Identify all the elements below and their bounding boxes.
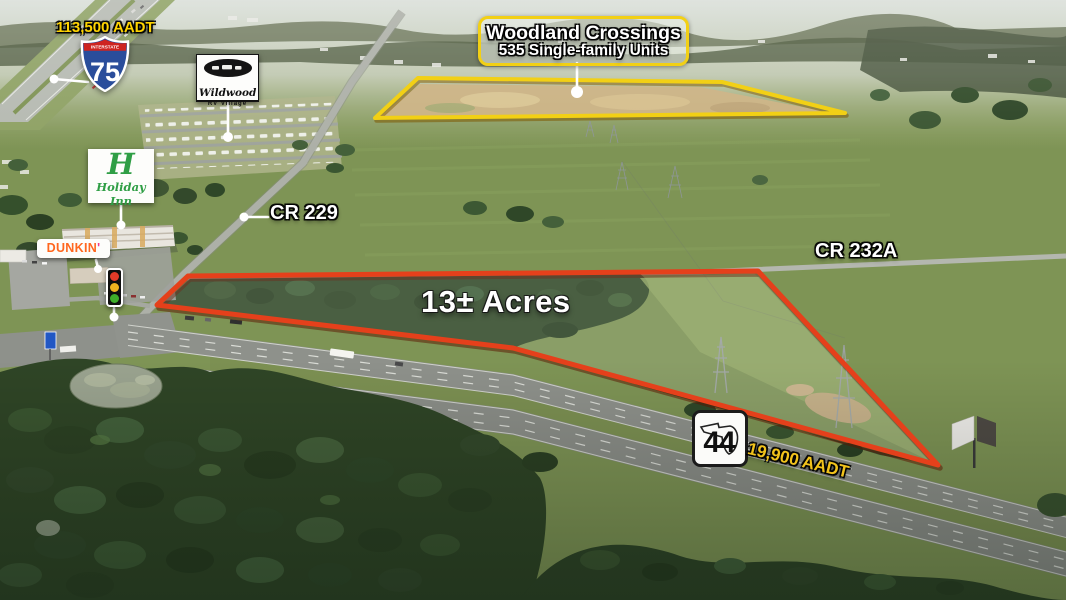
holiday-inn-monogram: H <box>88 150 154 179</box>
woodland-title: Woodland Crossings <box>481 23 686 43</box>
i75-number: 75 <box>90 57 120 87</box>
cr229-label: CR 229 <box>270 203 338 224</box>
wildwood-name: Wildwood <box>197 88 258 101</box>
i75-aadt-label: 113,500 AADT <box>56 20 155 36</box>
woodland-subtitle: 535 Single-family Units <box>481 43 686 59</box>
signal-red-light <box>110 272 119 281</box>
cr232a-label: CR 232A <box>815 241 897 262</box>
woodland-crossings-label: Woodland Crossings 535 Single-family Uni… <box>478 16 689 66</box>
dunkin-apostrophe: ' <box>97 241 100 255</box>
signal-amber-light <box>110 283 119 292</box>
traffic-signal-icon <box>106 268 123 307</box>
acreage-label: 13± Acres <box>421 286 571 319</box>
dunkin-sign: DUNKIN' <box>37 239 110 258</box>
dunkin-name: DUNKIN <box>47 241 97 255</box>
aerial-listing-image: 113,500 AADT INTERSTATE 75 Wildwood RV V… <box>0 0 1066 600</box>
wildwood-logo-icon <box>202 58 254 78</box>
sr44-number: 44 <box>703 426 736 459</box>
signal-green-light <box>110 294 119 303</box>
i75-shield: INTERSTATE 75 <box>80 36 130 92</box>
wildwood-rv-village-sign: Wildwood RV Village <box>196 54 259 102</box>
wildwood-subtitle: RV Village <box>197 101 258 107</box>
holiday-inn-name: Holiday Inn <box>88 180 154 208</box>
holiday-inn-sign: H Holiday Inn <box>88 149 154 203</box>
sr44-shield: 44 <box>692 410 748 467</box>
interstate-label: INTERSTATE <box>91 45 119 50</box>
